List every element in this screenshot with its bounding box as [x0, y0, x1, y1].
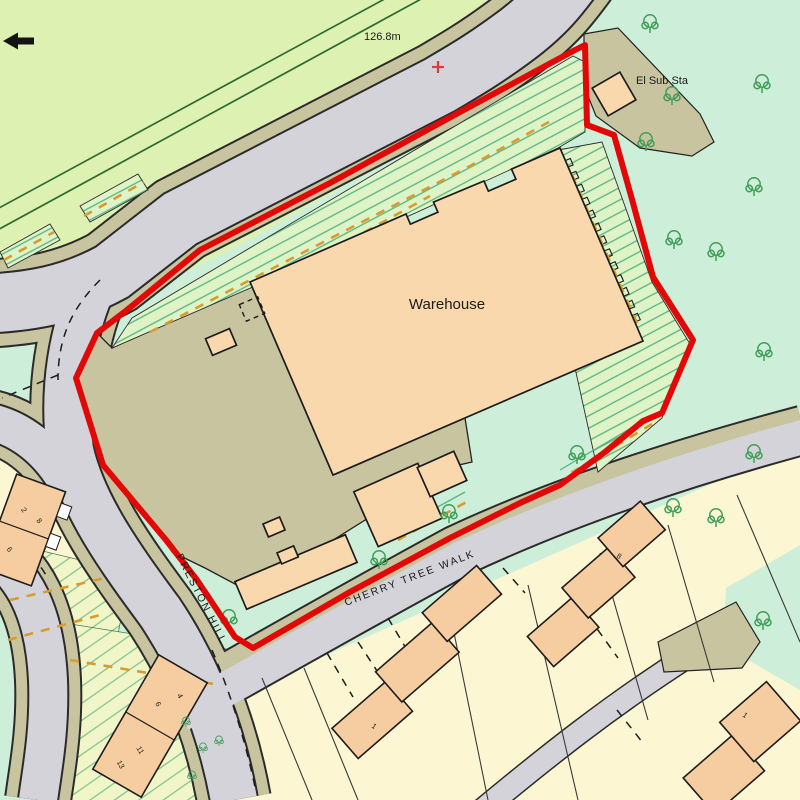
- substation-label: El Sub Sta: [636, 75, 689, 87]
- site-plan-map: Warehouse El Sub Sta: [0, 0, 800, 800]
- warehouse-label: Warehouse: [409, 296, 485, 313]
- map-canvas: Warehouse El Sub Sta: [0, 0, 800, 800]
- spot-height-label: 126.8m: [364, 31, 401, 43]
